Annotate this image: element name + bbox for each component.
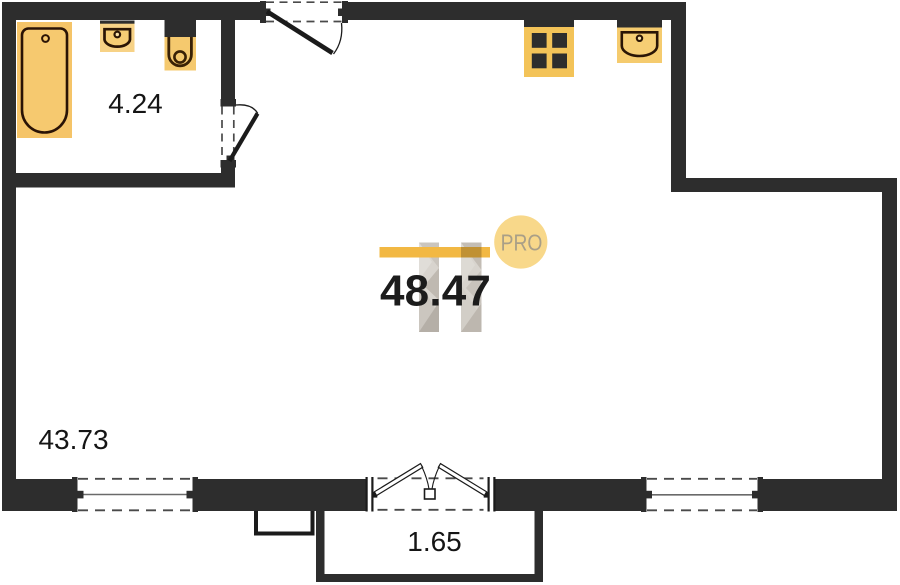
svg-text:PRO: PRO [501,230,543,256]
svg-text:48.47: 48.47 [380,267,491,316]
svg-text:4.24: 4.24 [108,88,163,119]
svg-text:43.73: 43.73 [38,424,108,455]
svg-text:1.65: 1.65 [407,526,462,557]
